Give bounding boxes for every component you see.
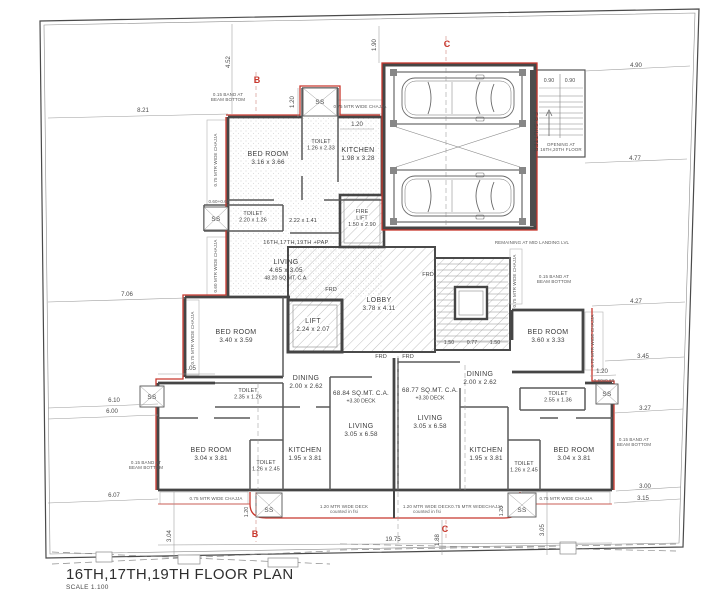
ss-shaft-label: SS [211,216,220,223]
room-dims-label: 1.26 x 2.45 [510,468,538,474]
dimension-label: 6.00 [106,408,118,415]
dimension-label: 1.90 [371,38,378,50]
dimension-label: 0.77 [467,340,478,346]
dimension-label: 7.06 [121,291,133,298]
dimension-label: 3.15 [637,495,649,502]
frd-door-label: FRD [422,272,434,278]
floor-plan-page: BED ROOM3.16 x 3.66TOILET1.26 x 2.33KITC… [0,0,715,598]
dimension-label: 1.20 [244,507,250,518]
annotation-label: REMAINING AT MID LANDING LVL [495,240,570,245]
section-marker-b: B [252,529,259,539]
room-label: LOBBY [366,297,391,304]
annotation-label: 0.75 MTR WIDE CHAJJA [590,314,595,367]
annotation-label: 0.75 MTR WIDE CHAJJA [190,311,195,364]
dimension-label: 6.10 [108,397,120,404]
frd-door-label: FRD [375,354,387,360]
room-label: LIVING [273,259,298,266]
staircase-main [435,258,510,350]
room-label: LIVING [417,415,442,422]
car-lift-block [384,65,536,228]
room-dims-label: 3.05 x 6.58 [413,423,447,430]
room-label: TOILET [548,391,568,397]
room-dims-label: 4.65 x 3.05 [269,267,303,274]
dimension-label: 0.90 [544,78,555,84]
annotation-label: BEAM BOTTOM [537,279,571,284]
dimension-label: 4.27 [630,298,642,305]
title-block: 16TH,17TH,19TH FLOOR PLAN SCALE 1.100 [66,566,294,591]
annotation-label: 0.60+0.60 [208,199,229,204]
room-label: DINING [293,375,320,382]
dimension-label: 0.90 [565,78,576,84]
room-dims-label: 1.95 x 3.81 [288,455,322,462]
room-label: BED ROOM [248,151,289,158]
dimension-label: 1.20 [596,368,608,375]
room-dims-label: 1.95 x 3.81 [469,455,503,462]
frd-door-label: FRD [402,354,414,360]
dimension-label: 1.20 [351,121,363,128]
plan-scale: SCALE 1.100 [66,584,294,591]
section-marker-c: C [444,39,451,49]
room-label: LIFT [305,318,321,325]
compound-wall [52,542,676,567]
dimension-label: 3.00 [639,483,651,490]
room-label: TOILET [238,388,258,394]
room-label: BED ROOM [216,329,257,336]
annotation-label: 0.75 MTR WIDECHAJJA [451,504,503,509]
room-dims-label: 3.04 x 3.81 [557,455,591,462]
room-extra-label: 48.20 SQ.MT. C.A. [264,276,307,282]
ss-shaft-label: SS [602,391,611,398]
room-dims-label: 3.60 x 3.33 [531,337,565,344]
annotation-label: 0.75 MTR WIDE CHAJJA [539,496,592,501]
room-label: FIRE [356,209,369,215]
room-label: TOILET [243,211,263,217]
room-dims-label: 3.40 x 3.59 [219,337,253,344]
ss-shaft-label: SS [147,394,156,401]
room-dims-label: 3.16 x 3.66 [251,159,285,166]
room-dims-label: 2.24 x 2.07 [296,326,330,333]
ss-shaft-label: SS [517,507,526,514]
annotation-label: 0.75 MTR WIDE CHAJJA [213,133,218,186]
annotation-label: 16TH,17TH,19TH +PAP [263,240,328,246]
dimension-label: 1.50 [490,340,501,346]
annotation-label: counted in fsi [413,509,441,514]
dimension-label: 6.07 [108,492,120,499]
dimension-label: 3.45 [637,353,649,360]
annotation-label: BEAM BOTTOM [617,442,651,447]
dimension-label: 1.20 [289,95,296,107]
room-dims-label: 1.26 x 2.45 [252,467,280,473]
room-label: LIVING [348,423,373,430]
dimension-label: 19.75 [385,536,401,543]
dimension-label: 3.27 [639,405,651,412]
ss-shaft-label: SS [315,99,324,106]
room-dims-label: 2.00 x 2.62 [463,379,497,386]
room-dims-label: 3.05 x 6.58 [344,431,378,438]
floor-plan-canvas: BED ROOM3.16 x 3.66TOILET1.26 x 2.33KITC… [0,0,715,598]
room-dims-label: 1.98 x 3.28 [341,155,375,162]
room-extra-label: +3.30 DECK [416,396,446,402]
dimension-label: 4.90 [630,62,642,69]
room-label: KITCHEN [469,447,502,454]
room-dims-label: 3.78 x 4.11 [363,305,396,312]
room-label: TOILET [514,461,534,467]
annotation-label: BEAM BOTTOM [129,465,163,470]
room-extra-label: 1.50 x 2.90 [348,222,376,228]
annotation-label: 0.75 MTR WIDE CHAJJA [189,496,242,501]
annotation-label: 0.60x0.60 [594,378,615,383]
room-extra-label: +3.30 DECK [347,399,377,405]
frd-door-label: FRD [325,287,337,293]
room-dims-label: 68.77 SQ.MT. C.A. [402,387,458,394]
annotation-label: 0.60 MTR WIDE CHAJJA [213,239,218,292]
annotation-label: BEAM BOTTOM [211,97,245,102]
room-label: TOILET [256,460,276,466]
dimension-label: 3.05 [539,523,546,535]
room-dims-label: 3.04 x 3.81 [194,455,228,462]
room-label: KITCHEN [288,447,321,454]
room-dims-label: 68.84 SQ.MT. C.A. [333,390,389,397]
dimension-label: 8.21 [137,107,149,114]
room-dims-label: 2.00 x 2.62 [289,383,323,390]
annotation-label: 0.75 MTR WIDE CHAJJA [333,104,386,109]
section-marker-c: C [442,524,449,534]
room-label: BED ROOM [528,329,569,336]
room-label: TOILET [311,139,331,145]
ss-shaft-label: SS [264,507,273,514]
room-label: KITCHEN [341,147,374,154]
dimension-label: 1.50 [444,340,455,346]
room-dims-label: 2.22 x 1.41 [289,218,317,224]
annotation-label: counted in fsi [330,509,358,514]
dimension-label: 1.05 [184,365,196,372]
dimension-label: 4.52 [225,55,232,67]
room-label: BED ROOM [191,447,232,454]
room-label: BED ROOM [554,447,595,454]
dimension-label: 3.04 [166,529,173,541]
annotation-label: 0.75 MTR WIDE CHAJJA [512,254,517,307]
dimension-label: 1.88 [434,533,441,545]
plan-title: 16TH,17TH,19TH FLOOR PLAN [66,566,294,583]
dimension-label: 4.77 [629,155,641,162]
annotation-label: F.R.SHUTTER [532,112,538,152]
room-dims-label: 2.55 x 1.36 [544,398,572,404]
room-label: DINING [467,371,494,378]
room-dims-label: 2.35 x 1.26 [234,395,262,401]
room-dims-label: 2.20 x 1.26 [239,218,267,224]
room-dims-label: LIFT [356,216,368,222]
room-dims-label: 1.26 x 2.33 [307,146,335,152]
annotation-label: 16TH,20TH FLOOR [540,147,582,152]
section-marker-b: B [254,75,261,85]
